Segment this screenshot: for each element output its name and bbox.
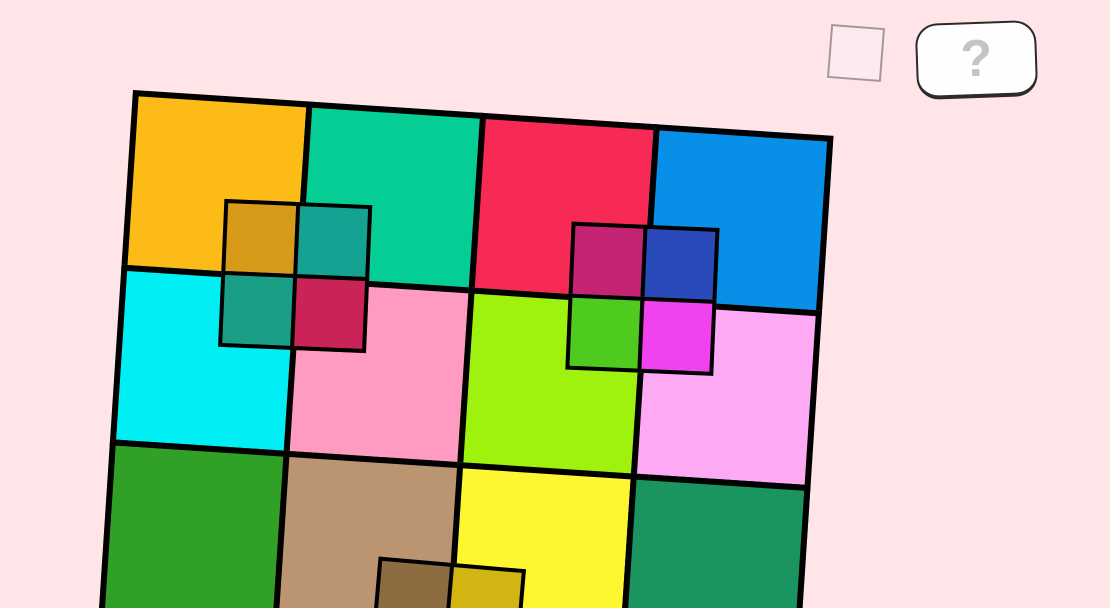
cell-forest-green[interactable] (98, 439, 289, 608)
puzzle-board (98, 90, 833, 608)
piece-raspberry[interactable] (568, 222, 647, 301)
piece-magenta[interactable] (637, 297, 716, 376)
piece-grass-green[interactable] (565, 294, 644, 373)
piece-block-2 (565, 222, 719, 376)
question-mark-icon: ? (960, 32, 994, 85)
piece-block-1 (218, 199, 372, 353)
game-stage: ? (0, 0, 1110, 608)
cell-sea-green[interactable] (619, 473, 810, 608)
piece-dark-orange[interactable] (221, 199, 300, 278)
piece-gold[interactable] (444, 563, 526, 608)
help-button[interactable]: ? (915, 20, 1039, 100)
piece-brown[interactable] (372, 557, 454, 608)
swatch-button[interactable] (827, 24, 885, 82)
piece-teal[interactable] (293, 202, 372, 281)
piece-teal-green[interactable] (218, 271, 297, 350)
piece-crimson[interactable] (290, 274, 369, 353)
piece-royal-blue[interactable] (640, 225, 719, 304)
